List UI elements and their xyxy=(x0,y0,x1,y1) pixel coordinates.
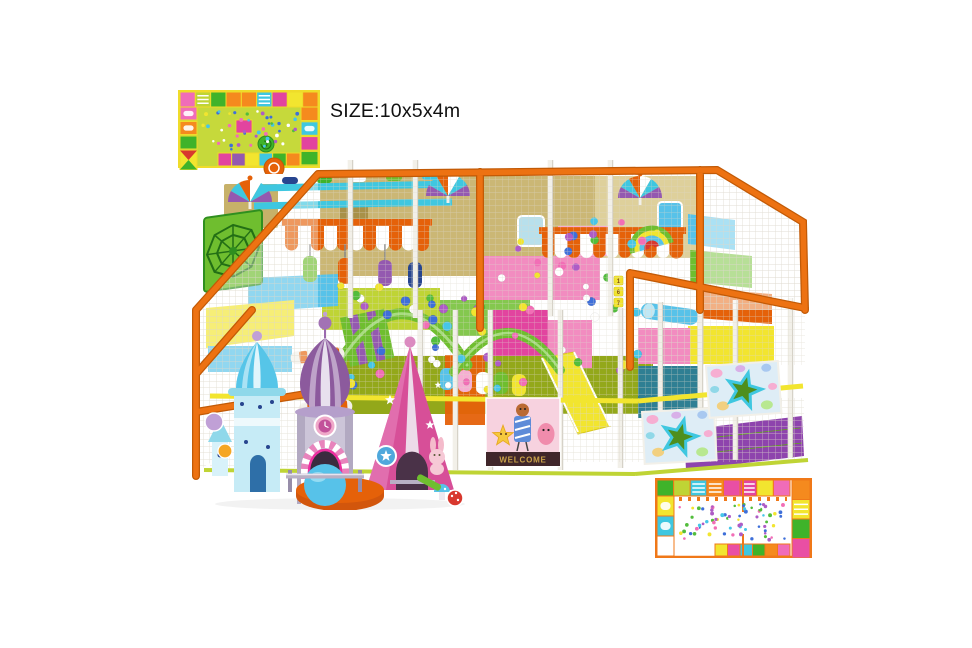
welcome-sign: WELCOME xyxy=(486,398,560,466)
welcome-text: WELCOME xyxy=(499,456,546,465)
climbing-star-panel xyxy=(642,408,717,464)
product-image-canvas: SIZE:10x5x4m xyxy=(0,0,972,648)
playground-3d-render: 167 xyxy=(190,160,850,510)
big-play-ball xyxy=(304,464,346,506)
lollipop-decor xyxy=(447,490,463,506)
size-label: SIZE:10x5x4m xyxy=(330,100,460,123)
floor-plan-frame-view xyxy=(655,478,812,558)
climbing-star-panel xyxy=(706,361,781,418)
castle-clock xyxy=(315,416,336,437)
